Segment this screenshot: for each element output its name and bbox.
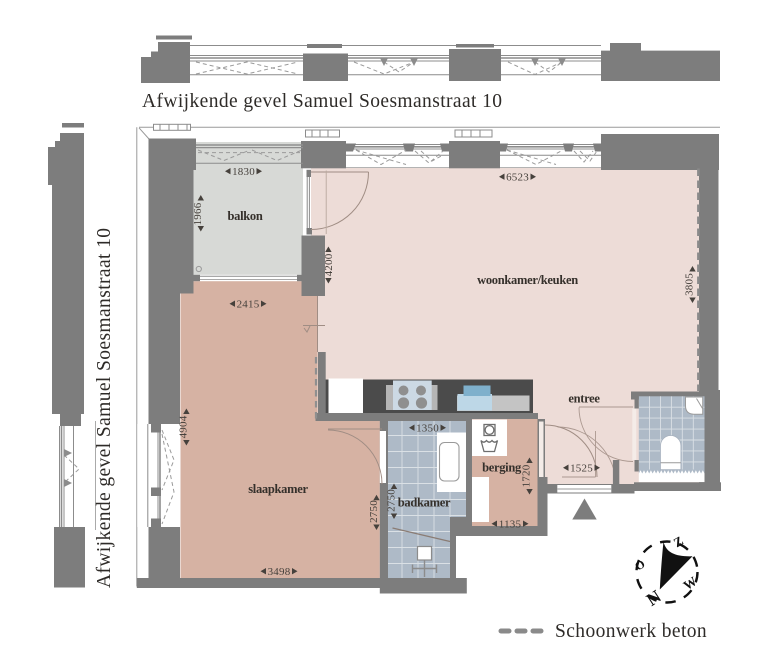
svg-text:badkamer: badkamer	[398, 496, 451, 510]
svg-text:2750: 2750	[386, 489, 398, 512]
svg-text:entree: entree	[568, 392, 600, 406]
svg-text:4904: 4904	[178, 415, 190, 438]
svg-text:berging: berging	[482, 461, 522, 475]
svg-text:1525: 1525	[570, 463, 593, 475]
svg-text:2415: 2415	[237, 299, 260, 311]
svg-text:3498: 3498	[268, 566, 291, 578]
svg-text:1830: 1830	[232, 166, 255, 178]
svg-text:1135: 1135	[499, 519, 522, 531]
svg-text:Afwijkende gevel Samuel Soesma: Afwijkende gevel Samuel Soesmanstraat 10	[94, 228, 115, 588]
svg-text:slaapkamer: slaapkamer	[248, 482, 308, 496]
svg-text:woonkamer/keuken: woonkamer/keuken	[477, 273, 578, 287]
svg-text:2750: 2750	[368, 500, 380, 523]
svg-text:O: O	[632, 557, 647, 574]
svg-text:6523: 6523	[506, 172, 529, 184]
svg-text:1966: 1966	[192, 202, 204, 225]
svg-text:1720: 1720	[521, 464, 533, 487]
svg-text:N: N	[643, 586, 665, 610]
svg-text:3805: 3805	[684, 273, 696, 296]
svg-text:Schoonwerk beton: Schoonwerk beton	[555, 621, 707, 642]
svg-text:Afwijkende gevel Samuel Soesma: Afwijkende gevel Samuel Soesmanstraat 10	[142, 91, 502, 112]
svg-text:balkon: balkon	[227, 209, 262, 223]
svg-text:1350: 1350	[416, 423, 439, 435]
svg-text:4200: 4200	[323, 253, 335, 276]
